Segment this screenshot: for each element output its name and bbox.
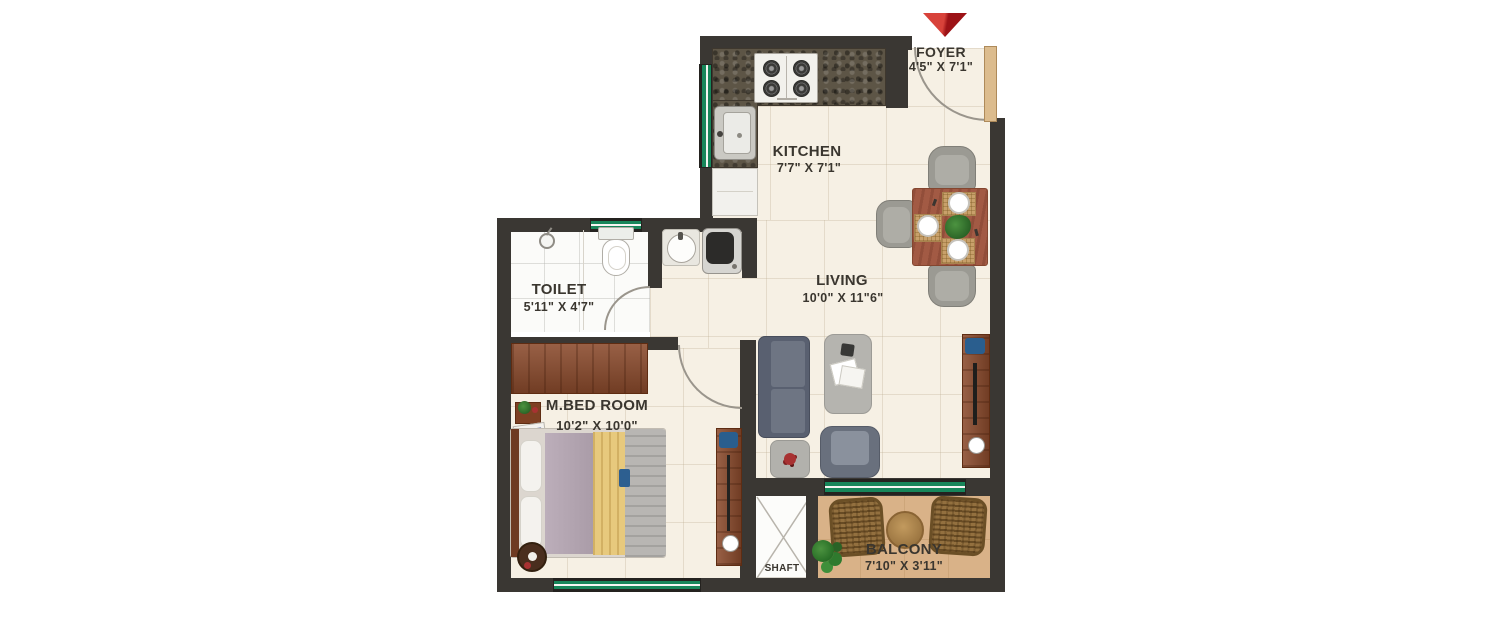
wall-toilet-right [648,230,662,288]
bed-headboard [511,429,519,557]
shower-icon [537,227,559,249]
sofa-cushion [771,341,805,387]
dining-chair [928,265,976,307]
toilet-dims: 5'11" X 4'7" [479,301,639,315]
plate-icon [947,239,969,261]
bedroom-window [553,578,701,592]
window-line [825,486,965,488]
pillow [520,496,542,548]
bedroom-dresser [716,428,742,566]
burner-icon [763,80,780,97]
plate-icon [948,192,970,214]
armchair-seat [831,431,869,465]
wall-right [990,118,1005,592]
bed-duvet-gray [625,429,666,557]
wardrobe [511,343,648,394]
dining-table [912,188,988,266]
kitchen-dims: 7'7" X 7'1" [729,162,889,176]
table-decor [840,343,855,357]
tv-unit-decor [965,338,985,354]
entry-arrow-icon [923,13,967,37]
plate-icon [917,215,939,237]
side-table [770,440,810,478]
living-balcony-window [824,479,966,495]
magazine [838,365,865,389]
floorplan-canvas: FOYER 4'5" X 7'1" KITCHEN 7'7" X 7'1" TO… [0,0,1500,625]
kitchen-label: KITCHEN [727,144,887,161]
cutlery-icon [974,229,979,237]
sofa-cushion [771,389,805,433]
chair-seat [935,155,969,185]
bedroom-dims: 10'2" X 10'0" [517,419,677,433]
wall-left [497,218,511,592]
pillow [520,440,542,492]
burner-icon [793,60,810,77]
stool-cushion [528,552,537,561]
sink-drain [737,133,742,138]
washer-door [706,232,734,264]
centerpiece-plant-icon [945,215,971,239]
wall-bedroom-right [740,340,756,592]
dining-chair [928,146,976,190]
stove-divider [786,56,787,98]
dresser-mirror [727,455,730,531]
foyer-dims: 4'5" X 7'1" [861,61,1021,75]
tv-unit-bowl [968,437,985,454]
living-label: LIVING [762,273,922,290]
wc-toilet-icon [602,239,630,276]
dresser-decor [719,432,738,448]
burner-icon [793,80,810,97]
wash-basin-pedestal [662,229,700,266]
armchair [820,426,880,478]
stove-controls [777,98,797,100]
window-line [591,224,641,226]
balcony-dims: 7'10" X 3'11" [824,560,984,574]
wc-seat [608,246,626,270]
stool-flower-icon [524,562,531,569]
chair-seat [935,271,969,301]
bed-blanket-yellow [593,432,625,555]
bedroom-label: M.BED ROOM [517,398,677,415]
shower-partition [583,230,584,330]
cutlery-icon [932,199,937,207]
chair-seat [883,207,910,243]
balcony-label: BALCONY [824,542,984,559]
washer-knob [732,264,737,269]
basin-tap [678,232,683,240]
dining-chair [876,200,914,248]
flower-decor-icon [784,453,796,465]
sink-faucet [717,131,723,137]
dresser-bowl [722,535,739,552]
foyer-label: FOYER [861,45,1021,60]
bed-mattress [545,433,593,554]
window-line [554,584,700,586]
toilet-label: TOILET [479,282,639,299]
coffee-table [824,334,872,414]
tv-icon [973,363,977,425]
bed-decor-blue [619,469,630,487]
stove-icon [754,53,818,103]
wall-niche-right [742,218,757,278]
burner-icon [763,60,780,77]
washing-machine-icon [702,228,742,274]
tv-unit [962,334,990,468]
stool [517,542,547,572]
window-line [706,65,708,167]
bed [510,428,666,558]
sofa [758,336,810,438]
shaft-label: SHAFT [751,563,813,574]
living-dims: 10'0" X 11"6" [763,292,923,306]
cabinet-line [717,191,753,192]
